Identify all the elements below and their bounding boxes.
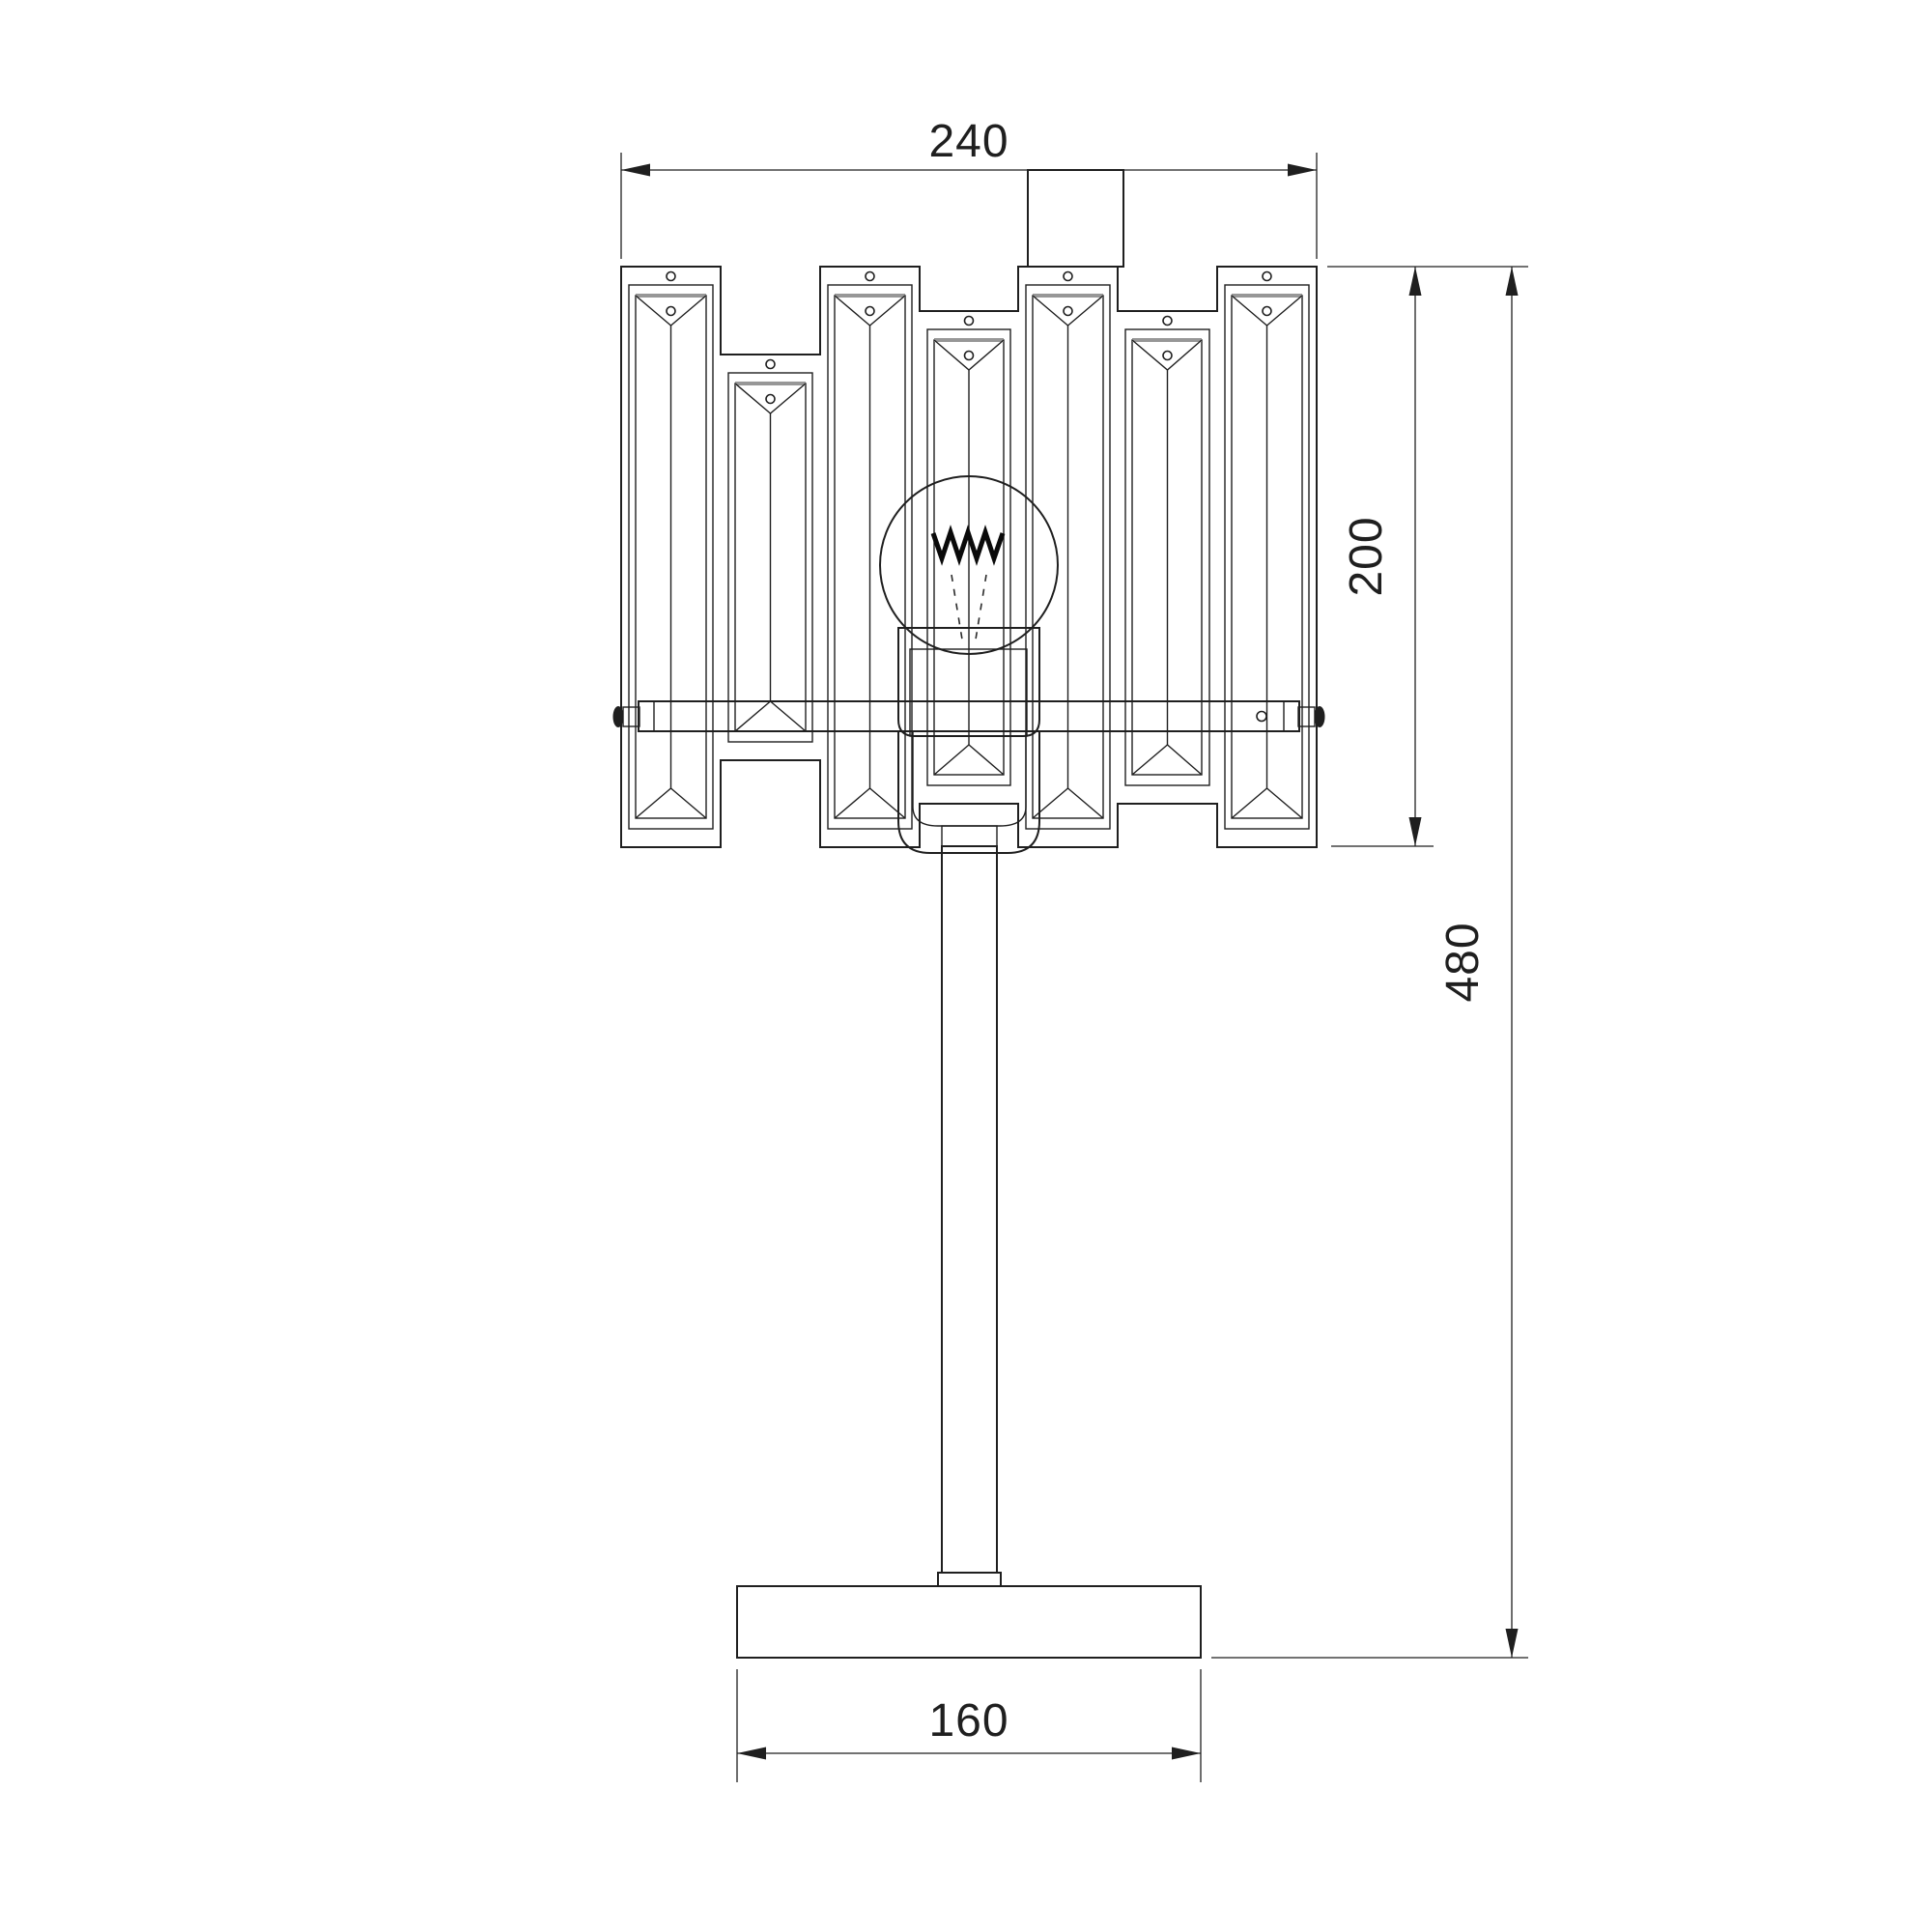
crystal-hole-icon — [1064, 307, 1072, 316]
crystal-panel — [728, 360, 812, 743]
lamp-body — [737, 846, 1201, 1658]
crystal-top-facet — [1232, 296, 1302, 326]
rail-nut — [1298, 707, 1315, 726]
arrowhead-up-icon — [1409, 267, 1422, 296]
crystal-bottom-facet — [636, 788, 706, 818]
crystal-bottom-facet — [1232, 788, 1302, 818]
crystal-hole-icon — [766, 395, 775, 404]
screw-head-icon — [613, 706, 624, 727]
crystal-top-facet — [934, 340, 1004, 370]
arrowhead-down-icon — [1506, 1629, 1519, 1658]
filament-lead — [975, 575, 986, 645]
arrowhead-down-icon — [1409, 817, 1422, 846]
socket-cap — [942, 826, 997, 846]
filament-icon — [933, 532, 1003, 558]
crystal-top-facet — [1132, 340, 1202, 370]
dimension-total-height: 480 — [1211, 267, 1528, 1658]
crystal-hole-icon — [1163, 352, 1172, 360]
arrowhead-left-icon — [621, 164, 650, 177]
crystal-panel — [1125, 317, 1209, 786]
mounting-hole-icon — [1163, 317, 1172, 326]
lamp-technical-drawing: 240 — [0, 0, 1932, 1932]
filament-lead — [952, 575, 963, 645]
stem-collar — [938, 1573, 1001, 1586]
lamp-base — [737, 1586, 1201, 1658]
arrowhead-up-icon — [1506, 267, 1519, 296]
top-fitting — [1028, 170, 1123, 267]
rail-hole-icon — [1257, 712, 1266, 722]
crystal-hole-icon — [1263, 307, 1271, 316]
crystal-bottom-facet — [1033, 788, 1103, 818]
mounting-hole-icon — [667, 272, 675, 281]
crystal-top-facet — [735, 384, 806, 413]
mounting-hole-icon — [866, 272, 874, 281]
crystal-bottom-facet — [934, 745, 1004, 775]
dimension-base-width: 160 — [737, 1669, 1201, 1782]
crystal-hole-icon — [667, 307, 675, 316]
dimension-label-480: 480 — [1437, 922, 1489, 1002]
lamp-stem — [942, 846, 997, 1573]
rail-nut — [623, 707, 639, 726]
crystal-top-facet — [1033, 296, 1103, 326]
crystal-panel — [1225, 272, 1309, 830]
crystal-bottom-facet — [835, 788, 905, 818]
dimension-shade-height: 200 — [1327, 267, 1528, 846]
crystal-top-facet — [835, 296, 905, 326]
crystal-panel — [629, 272, 713, 830]
screw-head-icon — [1315, 706, 1325, 727]
dimension-label-160: 160 — [928, 1695, 1009, 1747]
crystal-hole-icon — [866, 307, 874, 316]
arrowhead-left-icon — [737, 1747, 766, 1760]
mounting-hole-icon — [1263, 272, 1271, 281]
dimension-shade-width: 240 — [621, 116, 1317, 259]
arrowhead-right-icon — [1288, 164, 1317, 177]
dimension-label-240: 240 — [928, 116, 1009, 167]
mounting-hole-icon — [965, 317, 974, 326]
crystal-top-facet — [636, 296, 706, 326]
arrowhead-right-icon — [1172, 1747, 1201, 1760]
drawing-sheet: 240 — [0, 0, 1932, 1932]
crystal-bottom-facet — [1132, 745, 1202, 775]
crystal-hole-icon — [965, 352, 974, 360]
crystal-bottom-facet — [735, 701, 806, 731]
dimension-label-200: 200 — [1341, 516, 1392, 596]
mounting-hole-icon — [766, 360, 775, 369]
mounting-hole-icon — [1064, 272, 1072, 281]
